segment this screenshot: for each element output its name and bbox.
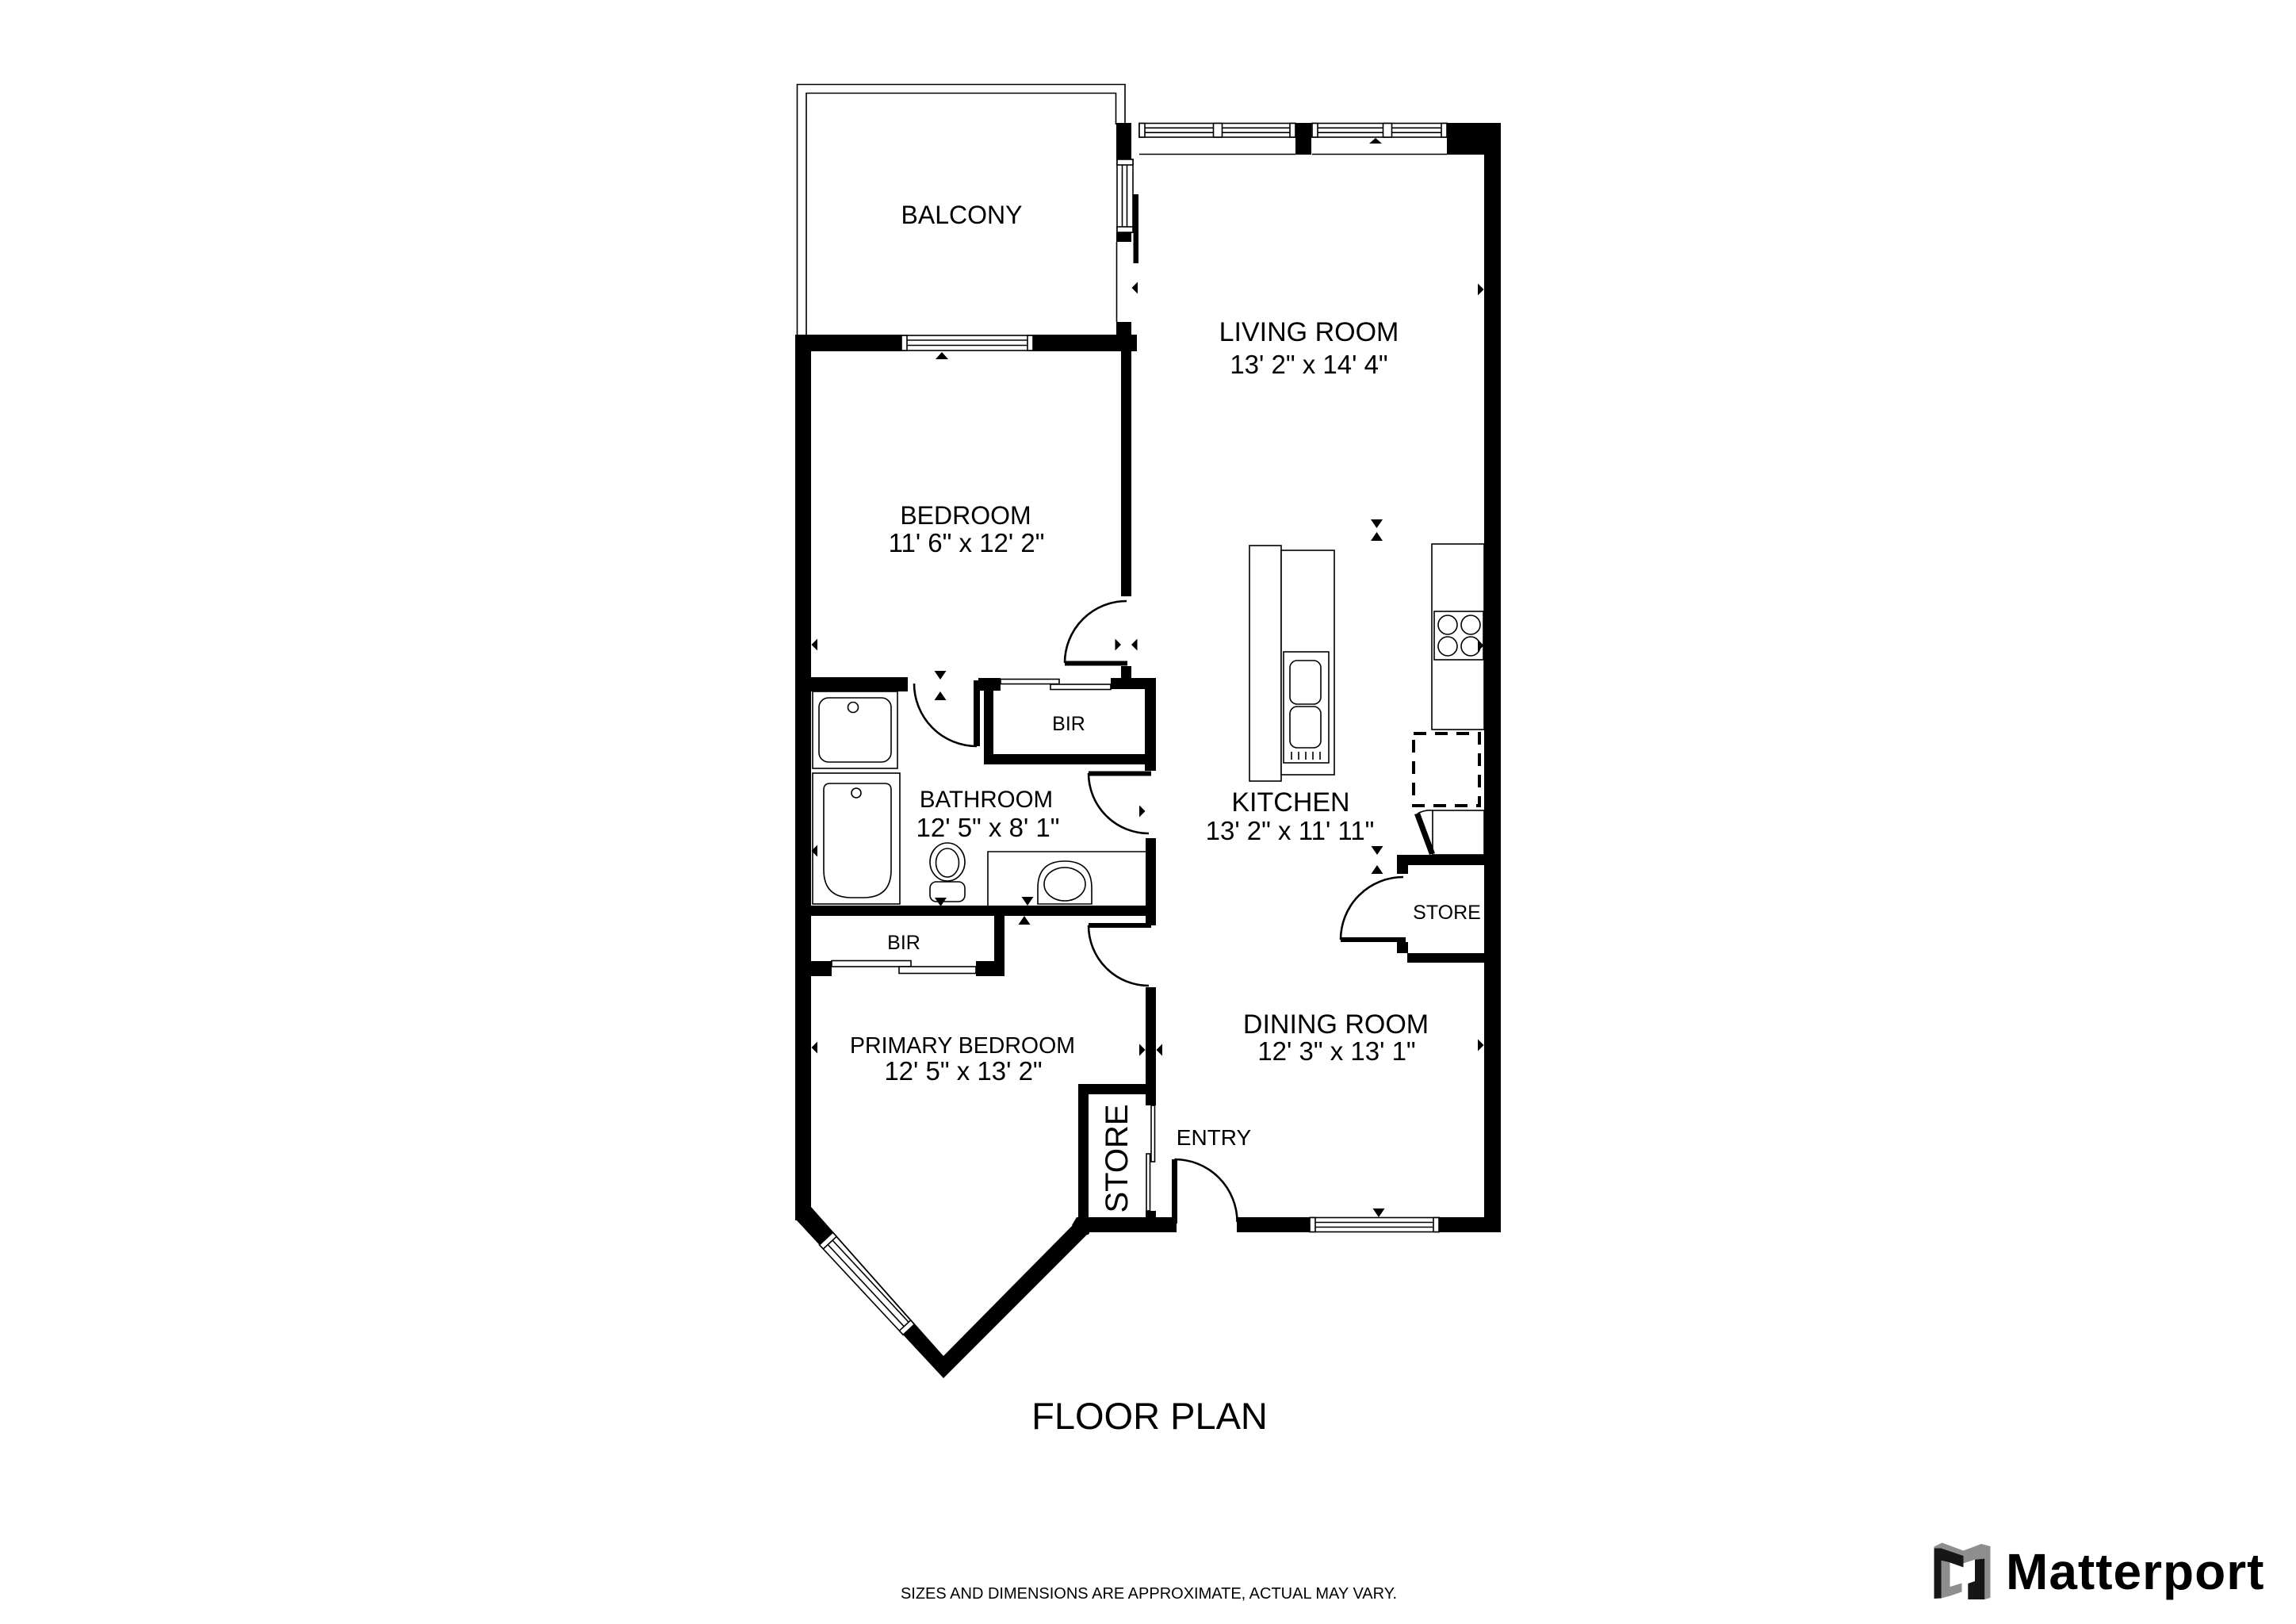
svg-text:BEDROOM: BEDROOM — [900, 501, 1031, 530]
svg-text:SIZES AND DIMENSIONS ARE APPRO: SIZES AND DIMENSIONS ARE APPROXIMATE, AC… — [901, 1585, 1397, 1603]
svg-text:LIVING ROOM: LIVING ROOM — [1219, 317, 1399, 347]
svg-text:KITCHEN: KITCHEN — [1231, 787, 1349, 818]
svg-text:STORE: STORE — [1100, 1104, 1135, 1212]
svg-text:STORE: STORE — [1413, 902, 1481, 924]
svg-text:12' 5" x 8' 1": 12' 5" x 8' 1" — [916, 813, 1060, 842]
svg-text:13' 2" x 14' 4": 13' 2" x 14' 4" — [1230, 350, 1387, 379]
svg-text:11' 6" x 12' 2": 11' 6" x 12' 2" — [889, 528, 1045, 557]
svg-text:PRIMARY BEDROOM: PRIMARY BEDROOM — [850, 1033, 1075, 1059]
svg-text:13' 2" x 11' 11": 13' 2" x 11' 11" — [1206, 816, 1375, 845]
svg-text:FLOOR PLAN: FLOOR PLAN — [1031, 1395, 1268, 1437]
svg-text:BALCONY: BALCONY — [901, 201, 1023, 229]
svg-text:BATHROOM: BATHROOM — [920, 787, 1053, 813]
svg-text:BIR: BIR — [1052, 713, 1085, 735]
svg-text:12' 5" x 13' 2": 12' 5" x 13' 2" — [884, 1056, 1042, 1086]
svg-text:Matterport: Matterport — [2006, 1543, 2264, 1600]
svg-text:DINING ROOM: DINING ROOM — [1243, 1009, 1429, 1040]
svg-text:BIR: BIR — [887, 932, 920, 954]
svg-text:ENTRY: ENTRY — [1177, 1125, 1252, 1150]
svg-text:12' 3" x 13' 1": 12' 3" x 13' 1" — [1257, 1036, 1415, 1066]
